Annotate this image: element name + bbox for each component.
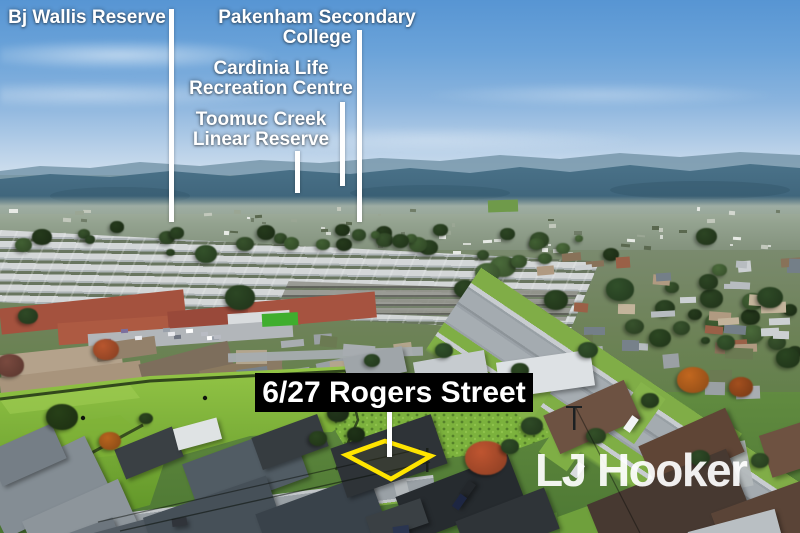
label-line: Linear Reserve xyxy=(193,129,329,150)
label-line: Cardinia Life xyxy=(213,58,328,79)
label-line: College xyxy=(283,27,352,48)
address-pointer-line xyxy=(387,410,392,457)
ljhooker-logo: LJ Hooker xyxy=(535,443,746,497)
property-address-box: 6/27 Rogers Street xyxy=(255,373,533,412)
label-line: Pakenham Secondary xyxy=(218,7,415,28)
label-line: Toomuc Creek xyxy=(196,109,327,130)
property-address-text: 6/27 Rogers Street xyxy=(262,376,525,409)
label-pakenham-secondary-college: Pakenham Secondary College xyxy=(216,8,418,48)
pointer-line-toomuc xyxy=(295,151,300,193)
label-line: Bj Wallis Reserve xyxy=(8,7,166,28)
label-line: Recreation Centre xyxy=(189,78,353,99)
label-cardinia-life-recreation-centre: Cardinia Life Recreation Centre xyxy=(170,59,372,99)
label-toomuc-creek-linear-reserve: Toomuc Creek Linear Reserve xyxy=(160,110,362,150)
logo-text: LJ Hooker xyxy=(535,444,746,496)
aerial-photo-listing: 6/27 Rogers Street Bj Wallis Reserve Pak… xyxy=(0,0,800,533)
label-bj-wallis-reserve: Bj Wallis Reserve xyxy=(6,8,168,28)
